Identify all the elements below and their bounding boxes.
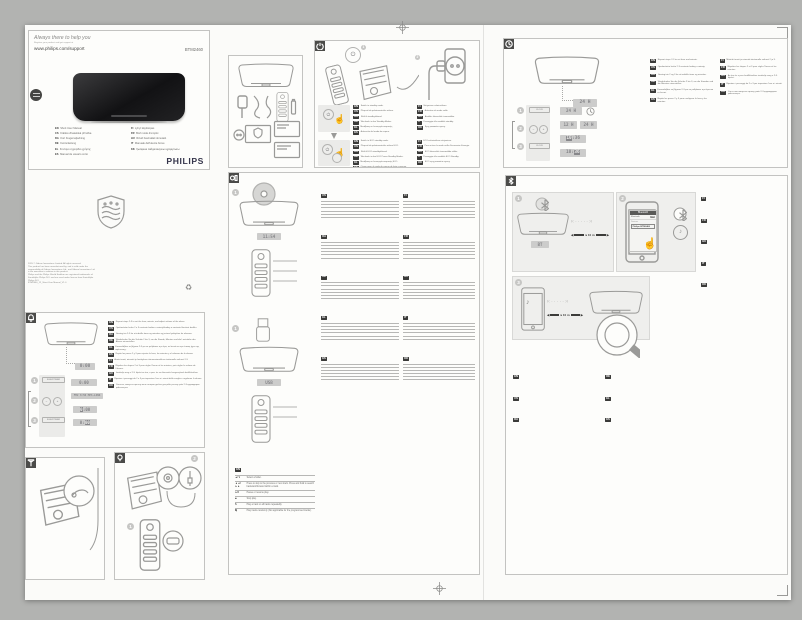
clock-text-col-2: FI Määritä tunnit ja minuutit toistamall… [720, 59, 784, 99]
lang-text: Wechseln in den Standby-Modus. [361, 121, 392, 123]
lang-tag: EL [321, 316, 327, 320]
lang-tag: KK [720, 91, 726, 95]
lang-tag: FI [701, 197, 706, 201]
cover-register-line: Register your product and get support at [34, 42, 73, 44]
lang-tag: CS [513, 397, 519, 401]
language-code: IT [131, 142, 133, 145]
step-bracket [512, 121, 515, 149]
lang-row: FR Répétez les étapes 2 et 3 pour régler… [108, 365, 202, 370]
product-photo-speaker [73, 73, 185, 121]
language-row: FR Bref mode d'emploi [131, 132, 205, 135]
recycle-icon: ♻ [185, 283, 192, 292]
lang-tag: CS [650, 66, 656, 70]
table-row: ◄◄/►► Press to skip to the previous or n… [235, 481, 315, 490]
display-minute-select: 10:36 [560, 149, 586, 157]
language-section: HU [701, 229, 785, 247]
lang-text: Wechseln in den ECO Power Standby-Modus. [361, 156, 404, 158]
lang-row: HU ECO készenléti üzemmódba váltás. [417, 151, 477, 155]
display-time: 0:00 [71, 379, 97, 386]
signal-waves: (( - - - - - )) [571, 219, 593, 223]
button-callout-lines [271, 253, 301, 293]
language-row: KK Қысқаша пайдаланушы нұсқаулығы [131, 148, 205, 151]
power-button: ⏻ [345, 47, 361, 63]
lang-text: Pour activer le mode veille d'économie d… [425, 145, 470, 147]
language-code: CS [55, 132, 59, 135]
lang-tag: DE [353, 121, 359, 125]
language-section: HU [403, 264, 475, 301]
plus-button: + [53, 397, 62, 406]
language-label: Manuale dell'utente breve [135, 142, 165, 145]
language-section: EN [513, 364, 599, 382]
lang-row: KK Күту режиміне ауысу. [417, 126, 477, 130]
bt-text-col-1: EN CS DA [513, 364, 599, 429]
lang-tag: KK [417, 126, 423, 130]
lang-text: Επαναλάβετε τα βήματα 2-3 για να ρυθμίσε… [657, 89, 714, 94]
step-3-marker: 3 [515, 279, 522, 286]
box-contents-panel [228, 55, 303, 168]
lang-row: ES Cómo pasar al modo de espera de bajo … [353, 166, 415, 168]
display-minute-select: 0:00 [73, 419, 97, 426]
display-usb: USB [257, 379, 281, 386]
timer-instructions: EN Repeat steps 2-3 to set the hour, min… [108, 321, 202, 392]
table-row [403, 298, 475, 301]
lang-text: Activation du mode veille. [425, 110, 449, 112]
lang-tag: KK [403, 357, 409, 361]
language-row: EL Σύντομο εγχειρίδιο χρήσης [55, 148, 129, 151]
timer-panel: 0:00 1 2 3 SLEEP/TIMER − + SLEEP/TIMER 0… [25, 312, 205, 448]
clock-text-col-1: EN Repeat steps 2-3 to set hour and minu… [650, 59, 714, 107]
lang-row: CS Přepnutí do pohotovostního režimu ECO… [353, 145, 415, 149]
language-row: IT Manuale dell'utente breve [131, 142, 205, 145]
language-section: IT [403, 305, 475, 342]
display-24h: 24 H [560, 107, 582, 115]
language-section: KK [403, 346, 475, 383]
lang-tag: HU [108, 372, 114, 376]
lang-tag: DE [605, 375, 611, 379]
bluetooth-panel: 1 BT (( - - - - - )) ◀≤ 10 m▶ 2 Bluetoot… [505, 175, 788, 575]
fold-line [483, 25, 484, 600]
bt-indicator-callout [673, 207, 687, 221]
step-2-marker: 2 [517, 125, 524, 132]
lang-text: Passaggio alla modalità standby. [423, 121, 453, 123]
lang-row: EN Repeat steps 2-3 to set the hour, min… [108, 321, 202, 325]
cover-panel: Always there to help you Register your p… [28, 30, 210, 170]
crop-corner-mark [777, 27, 788, 38]
button-strip [39, 375, 65, 437]
display-bt: BT [531, 241, 549, 248]
lang-row: IT Passaggio alla modalità standby. [417, 121, 477, 125]
lang-tag: ES [353, 131, 359, 135]
language-code: FI [131, 127, 133, 130]
lang-text: Az óra és a perc beállításához ismételje… [728, 75, 784, 80]
table-row [321, 298, 399, 301]
bt-toggle-label: Bluetooth [631, 216, 640, 218]
language-row: FI Lyhyt käyttöopas [131, 127, 205, 130]
lang-tag: IT [701, 262, 706, 266]
button-symbol: ■ [235, 498, 245, 501]
row-text: Pause or resume play. [247, 492, 315, 495]
lang-tag: FI [417, 105, 422, 109]
lang-tag: DE [650, 81, 656, 85]
clock-icon [586, 107, 595, 116]
power-cord [395, 67, 419, 97]
lang-text: Ripetere i passaggi da 2 a 3 per imposta… [726, 83, 782, 86]
clock-button: CLOCK [529, 143, 550, 149]
lang-row: FI Aseta tunnit, minuutit ja herätyksen … [108, 359, 202, 363]
standby-text-col-2: FI Siirtyminen valmiustilaan. FR Activat… [417, 105, 477, 131]
lang-text: Määritä tunnit ja minuutit toistamalla v… [726, 59, 775, 62]
leaflet-sheet: Always there to help you Register your p… [25, 25, 791, 600]
crosshair-mark-icon [433, 582, 446, 595]
antenna-icon [25, 457, 36, 468]
lang-tag: HU [417, 151, 423, 155]
crosshair-mark-icon [396, 21, 409, 34]
button-symbol: ⇆ [235, 510, 245, 513]
button-symbol: ►II [235, 492, 245, 495]
language-section: IT [701, 251, 785, 269]
clock-mini-icon [332, 153, 342, 163]
playback-table-en: EN ▲/▼ Select a folder. ◄◄/►► Press to s… [235, 457, 315, 514]
lang-text: Switch to ECO standby mode. [361, 140, 389, 142]
standby-press-figure: ☝ ⏻ [318, 105, 350, 132]
plus-button: + [539, 125, 548, 134]
bluetooth-icon [535, 197, 549, 211]
lang-tag: EN [353, 140, 359, 144]
lang-tag: CS [353, 145, 359, 149]
lang-text: Přepnutí do pohotovostního režimu. [361, 110, 394, 112]
lang-tag: KK [701, 283, 707, 287]
power-button: ⏻ [323, 109, 334, 120]
lang-row: KK Сағатты, минутты орнату және оятқыш д… [108, 384, 202, 389]
lang-tag: CS [321, 194, 327, 198]
lang-text: Μετάβαση σε λειτουργία αναμονής ECO. [360, 161, 397, 163]
table-row [321, 379, 399, 382]
display-time: 0:00 [75, 363, 95, 370]
language-code: HU [131, 137, 135, 140]
lang-tag: DA [108, 333, 114, 337]
lang-tag: IT [403, 316, 408, 320]
lang-text: Wiederholen Sie die Schritte 2 bis 3, um… [116, 339, 202, 344]
language-code: KK [131, 148, 135, 151]
row-text: Stop play. [247, 498, 315, 501]
step-1-marker: 1 [517, 107, 524, 114]
power-icon [314, 40, 325, 51]
button-symbol: ◄◄/►► [235, 483, 245, 489]
table-row [403, 217, 475, 220]
disc-usb-panel: 1 11:54 1 USB EN [228, 172, 480, 575]
table-row [321, 217, 399, 220]
lang-text: Ripetere i passaggi da 2 a 3 per imposta… [114, 378, 202, 381]
language-section: FR [403, 224, 475, 261]
display-24h: 24 H [580, 121, 597, 129]
step-2-marker: 2 [619, 195, 626, 202]
step-1-marker: 1 [31, 377, 38, 384]
language-section: DE [605, 364, 693, 382]
bt-figure-phone-settings: 2 Bluetooth Bluetooth ON Devices Philips… [616, 192, 696, 272]
lang-row: DA Gentag trin 2-3 for at indstille time… [108, 333, 202, 337]
lang-row: DE Wiederholen Sie die Schritte 2 bis 3,… [650, 81, 714, 86]
beep-note-callout: ♪ [673, 225, 688, 240]
table-row [321, 339, 399, 342]
row-text: Press to skip to the previous or next tr… [247, 483, 315, 489]
lang-text: Aseta tunnit, minuutit ja herätyksen ään… [114, 359, 188, 362]
lang-tag: DE [353, 156, 359, 160]
remote-drawing [139, 519, 161, 571]
table-row [321, 258, 399, 261]
cable-drawing [161, 489, 201, 513]
lang-text: Skift til standbytilstand. [361, 116, 382, 118]
lang-row: ES Repita los pasos 2 y 3 para ajustar l… [108, 353, 202, 357]
row-text: Select a folder. [247, 477, 315, 480]
lang-row: EL Μετάβαση σε λειτουργία αναμονής ECO. [353, 161, 415, 165]
lang-tag: EN [108, 321, 114, 325]
lang-tag: EN [235, 468, 241, 472]
lang-tag: FR [417, 145, 423, 149]
lang-row: IT Ripetere i passaggi da 2 a 3 per impo… [720, 83, 784, 87]
language-code: EL [55, 148, 58, 151]
distance-label: ◀≤ 10 m▶ [547, 313, 583, 317]
music-note-icon: ♪ [526, 299, 530, 306]
button-callout-lines [271, 399, 301, 439]
lang-row: FI ECO-valmiustilaan siirtyminen. [417, 140, 477, 144]
lang-text: Repita los pasos 2 y 3 para ajustar la h… [116, 353, 194, 356]
row-text: Play tracks randomly (Not applicable for… [247, 510, 315, 513]
display-12h: 12 H [560, 121, 577, 129]
sleep-timer-button: SLEEP/TIMER [42, 377, 65, 383]
lang-row: FR Activation du mode veille. [417, 110, 477, 114]
lang-tag: ES [321, 357, 327, 361]
lang-text: Repita los pasos 2 y 3 para configurar l… [658, 98, 714, 103]
language-row: HU Rövid használati útmutató [131, 137, 205, 140]
lang-tag: FI [417, 140, 422, 144]
lang-row: CS Opakováním kroků 2-3 nastavte hodiny … [650, 66, 714, 70]
device-list-item: Philips BTM2460 [631, 224, 655, 229]
lang-tag: FR [403, 235, 409, 239]
table-row: ⇆ Play tracks randomly (Not applicable f… [235, 508, 315, 514]
lang-text: Cómo pasar al modo de espera de bajo con… [361, 166, 407, 168]
speaker-rear-drawing [353, 63, 395, 105]
lang-text: Passaggio alla modalità ECO Standby. [423, 156, 459, 158]
lang-row: FR Pour activer le mode veille d'économi… [417, 145, 477, 149]
language-row: DA Kort brugervejledning [55, 137, 129, 140]
lang-tag: EL [650, 89, 656, 93]
minus-button: − [529, 125, 538, 134]
bt-toggle-on: ON [650, 216, 655, 218]
lang-tag: ES [650, 98, 656, 102]
lang-text: Átváltás készenléti üzemmódba. [425, 116, 455, 118]
hand-press-icon: ☝ [334, 114, 345, 125]
lang-text: Opakováním kroků 2-3 nastavte hodiny a m… [658, 66, 705, 69]
plug-zoom-circle [177, 465, 203, 491]
language-row: ES Manual de usuario corto [55, 153, 129, 156]
step-3-marker: 3 [31, 417, 38, 424]
lang-tag: IT [720, 83, 725, 87]
step-2-marker: 2 [31, 397, 38, 404]
language-label: Rövid használati útmutató [136, 137, 166, 140]
button-symbol: ↻ [235, 504, 245, 507]
language-section: DE [321, 264, 399, 301]
lang-tag: FI [403, 194, 408, 198]
lang-row: KK ECO күту режиміне ауысу. [417, 161, 477, 165]
lang-tag: DA [353, 151, 359, 155]
lang-row: CS Opakováním kroků 2 a 3 nastavte hodin… [108, 327, 202, 331]
language-section: EL [605, 386, 693, 404]
lang-tag: FR [720, 66, 726, 70]
power-button: ⏻ [322, 144, 333, 155]
lang-row: EN Switch to standby mode. [353, 105, 415, 109]
display-track-time: 11:54 [257, 233, 281, 240]
language-section: ES [321, 346, 399, 383]
step-3-marker: 3 [517, 143, 524, 150]
lang-row: DE Wiederholen Sie die Schritte 2 bis 3,… [108, 339, 202, 344]
language-section: KK [701, 272, 785, 290]
playback-table-col-2: CS [321, 183, 399, 386]
speaker-outline [42, 321, 100, 347]
leader-line [66, 347, 75, 364]
button-zoom-circle [161, 529, 185, 553]
lang-tag: CS [108, 327, 114, 331]
safety-leaflet-drawing [273, 141, 301, 159]
lang-row: EN Repeat steps 2-3 to set hour and minu… [650, 59, 714, 63]
language-section: DA [321, 224, 399, 261]
display-24h: 24 H [573, 99, 597, 107]
lang-row: EN Switch to ECO standby mode. [353, 140, 415, 144]
step-2-marker: 2 [191, 455, 198, 462]
down-arrow [331, 133, 337, 139]
eco-text-col-2: FI ECO-valmiustilaan siirtyminen. FR Pou… [417, 140, 477, 166]
antenna-wire [84, 466, 100, 558]
lang-text: Сағат пен минутты орнату үшін 2-3 қадамд… [728, 91, 784, 96]
lang-tag: DA [513, 418, 519, 422]
lang-row: IT Ripetere i passaggi da 2 a 3 per impo… [108, 378, 202, 382]
lang-text: ECO készenléti üzemmódba váltás. [425, 151, 458, 153]
language-label: Қысқаша пайдаланушы нұсқаулығы [136, 148, 179, 151]
phone-drawing [521, 287, 545, 331]
lang-tag: FI [108, 359, 113, 363]
lang-text: Opakováním kroků 2 a 3 nastavte hodinu a… [116, 327, 197, 330]
bt-text-col-2: DE EL ES [605, 364, 693, 429]
usb-stick-drawing [255, 317, 271, 343]
display-source: FM2 8:56 MP3-LINK [71, 393, 103, 399]
hand-press-icon: ☝ [643, 237, 657, 250]
row-text: Play a track or all tracks repeatedly. [247, 504, 315, 507]
lang-text: Gentag trin 2 og 3 for at indstille time… [658, 74, 707, 77]
lang-text: Gentag trin 2-3 for at indstille timer o… [116, 333, 192, 336]
language-label: Short User Manual [60, 127, 82, 130]
lang-row: EL Μετάβαση σε λειτουργία αναμονής. [353, 126, 415, 130]
lang-text: Switch to standby mode. [361, 105, 384, 107]
lang-tag: DE [108, 339, 114, 343]
language-code: DA [55, 137, 59, 140]
lang-text: Activación del modo de espera. [361, 131, 390, 133]
language-section: FR [701, 208, 785, 226]
clock-icon [503, 38, 514, 49]
warranty-card-drawing [244, 124, 272, 144]
remote-drawing [276, 92, 289, 122]
remote-drawing [251, 395, 271, 443]
speaker-driver-closeup [594, 312, 640, 358]
language-code: DE [55, 142, 59, 145]
crop-corner-mark [777, 585, 788, 596]
remote-drawing [251, 249, 271, 297]
lang-tag: ES [605, 418, 611, 422]
playback-table-col-3: FI [403, 183, 475, 386]
lang-row: EL Επαναλάβετε τα βήματα 2-3 για να ρυθμ… [108, 346, 202, 351]
language-row: CS Krátká uživatelská příručka [55, 132, 129, 135]
language-section: CS [321, 183, 399, 220]
lang-text: Μετάβαση σε λειτουργία αναμονής. [360, 126, 392, 128]
audio-in-icon [114, 452, 125, 463]
lang-tag: IT [417, 121, 422, 125]
table-row [403, 379, 475, 382]
lang-text: Přepnutí do pohotovostního režimu ECO. [361, 145, 399, 147]
lang-row: HU Átváltás készenléti üzemmódba. [417, 116, 477, 120]
bt-figure-pairing: 1 BT (( - - - - - )) ◀≤ 10 m▶ [512, 192, 614, 272]
legal-text: 2015 © Gibson Innovations Limited. All r… [28, 263, 146, 285]
lang-tag: EN [353, 105, 359, 109]
wall-outlet-plug-drawing [421, 47, 467, 103]
speaker-outline [237, 345, 301, 374]
lang-text: Repeat steps 2-3 to set the hour, minute… [116, 321, 185, 324]
speaker-outline [237, 199, 301, 228]
language-label: Krátká uživatelská příručka [60, 132, 91, 135]
minus-button: − [42, 397, 51, 406]
lang-row: FR Répétez les étapes 2 et 3 pour régler… [720, 66, 784, 71]
lang-tag: FR [701, 219, 707, 223]
lang-tag: IT [417, 156, 422, 160]
speaker-stand [91, 121, 167, 123]
lang-tag: IT [108, 378, 113, 382]
lang-row: ES Repita los pasos 2 y 3 para configura… [650, 98, 714, 103]
lang-tag: EL [108, 346, 114, 350]
manual-booklet-drawing [273, 120, 301, 138]
lang-row: IT Passaggio alla modalità ECO Standby. [417, 156, 477, 160]
language-label: Kort brugervejledning [60, 137, 85, 140]
audio-in-panel: 2 1 [114, 452, 205, 580]
lang-text: Επαναλάβετε τα βήματα 2-3 για να ρυθμίσε… [115, 346, 202, 351]
lang-row: DA Gentag trin 2 og 3 for at indstille t… [650, 74, 714, 78]
language-label: Lyhyt käyttöopas [135, 127, 154, 130]
lang-row: DE Wechseln in den ECO Power Standby-Mod… [353, 156, 415, 160]
disc-usb-icon [228, 172, 239, 183]
scanned-manual-page: Always there to help you Register your p… [0, 0, 802, 620]
step-1-marker: 1 [232, 325, 239, 332]
lang-tag: ES [108, 353, 114, 357]
language-row: DE Kurzanleitung [55, 142, 129, 145]
language-row: EN Short User Manual [55, 127, 129, 130]
lang-text: Repeat steps 2-3 to set hour and minute. [658, 59, 698, 62]
power-adapter-drawing [235, 94, 250, 120]
lang-text: Répétez les étapes 2 et 3 pour régler l'… [116, 365, 202, 370]
lang-tag: KK [108, 384, 114, 388]
language-section: EL [321, 305, 399, 342]
philips-shield-icon [97, 195, 125, 229]
fm-wire-drawing [263, 94, 274, 120]
lang-tag: KK [417, 161, 423, 165]
distance-label: ◀≤ 10 m▶ [571, 233, 609, 237]
language-code: EN [55, 127, 59, 130]
step-1-marker: 1 [127, 523, 134, 530]
lang-tag: DA [650, 74, 656, 78]
cover-language-col-2: FI Lyhyt käyttöopas FR Bref mode d'emplo… [131, 127, 205, 153]
button-strip [526, 105, 550, 161]
cover-language-col-1: EN Short User Manual CS Krátká uživatels… [55, 127, 129, 158]
leader-line [562, 86, 573, 101]
bluetooth-icon [505, 175, 516, 186]
lang-text: Skift til ECO-standbytilstand. [361, 151, 387, 153]
lang-tag: EL [605, 397, 611, 401]
lang-tag: FI [720, 59, 725, 63]
